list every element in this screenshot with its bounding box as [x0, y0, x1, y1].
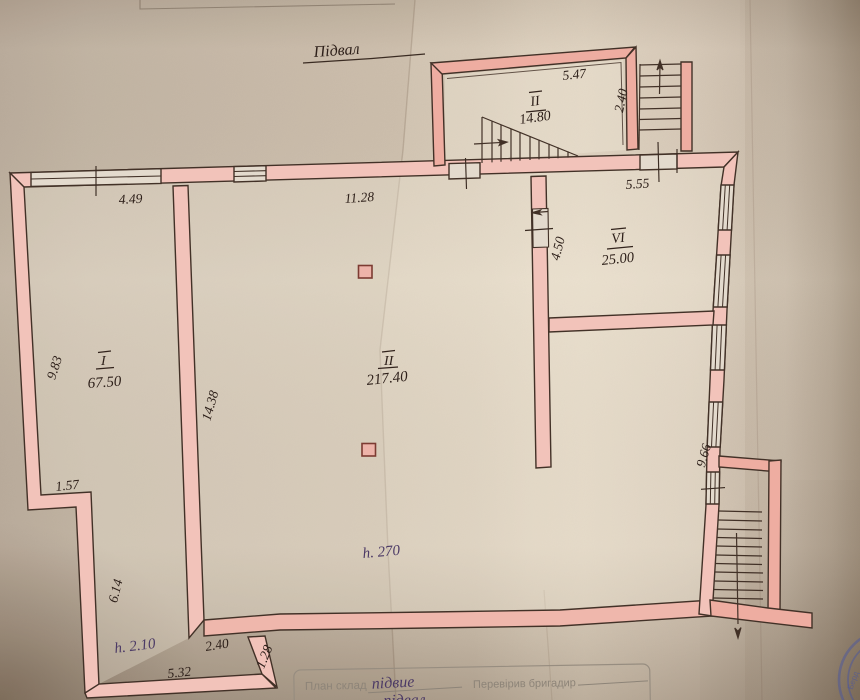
svg-text:5.32: 5.32 — [167, 664, 192, 681]
svg-text:11.28: 11.28 — [344, 189, 375, 206]
svg-text:5.55: 5.55 — [625, 175, 650, 192]
svg-text:h. 270: h. 270 — [362, 543, 401, 562]
svg-text:67.50: 67.50 — [87, 374, 122, 392]
svg-text:Перевірив бригадир: Перевірив бригадир — [473, 677, 576, 691]
svg-text:II: II — [383, 354, 395, 369]
svg-text:1.57: 1.57 — [55, 476, 81, 494]
svg-text:Підвал: Підвал — [312, 41, 360, 61]
svg-text:підвал: підвал — [383, 692, 426, 700]
svg-text:5.47: 5.47 — [562, 65, 588, 83]
svg-text:4.49: 4.49 — [118, 191, 143, 207]
svg-text:підвие: підвие — [371, 673, 414, 692]
svg-text:План склад: План склад — [305, 680, 367, 693]
